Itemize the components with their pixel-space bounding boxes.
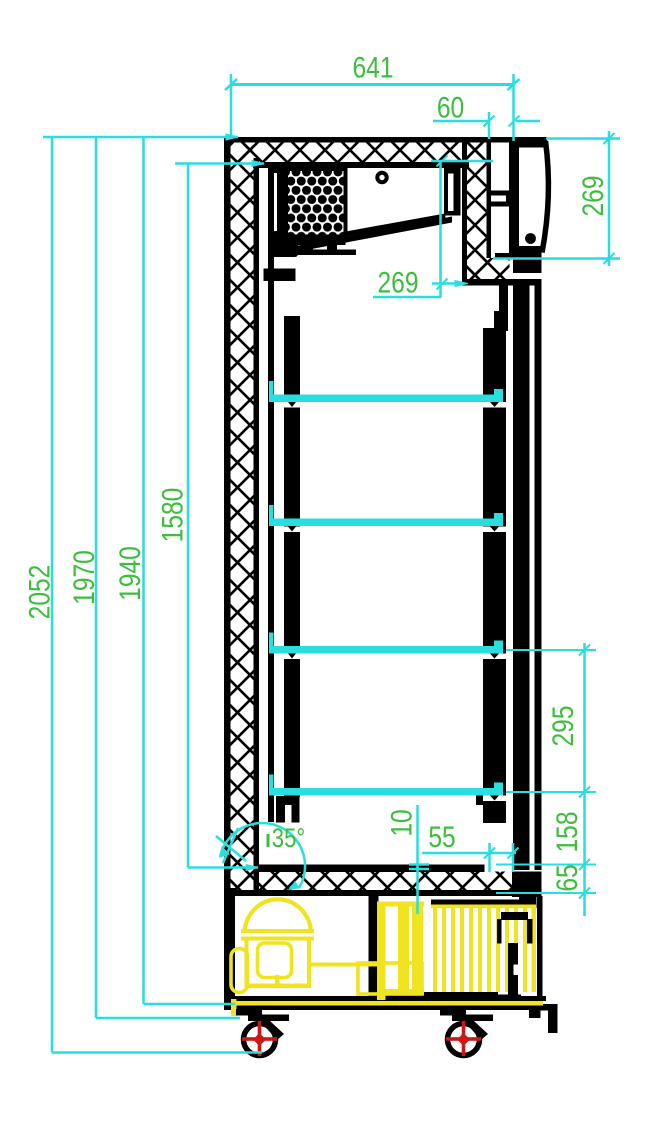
svg-text:65: 65 — [550, 864, 584, 891]
svg-text:35°: 35° — [272, 824, 305, 854]
svg-text:295: 295 — [546, 705, 580, 746]
svg-text:60: 60 — [437, 90, 464, 124]
svg-text:1970: 1970 — [67, 550, 101, 605]
svg-text:10: 10 — [384, 809, 418, 836]
svg-text:1940: 1940 — [113, 546, 147, 601]
svg-text:1580: 1580 — [155, 488, 189, 543]
svg-text:641: 641 — [352, 50, 393, 84]
svg-text:55: 55 — [428, 820, 455, 854]
svg-text:2052: 2052 — [22, 565, 56, 620]
svg-text:158: 158 — [550, 811, 584, 852]
svg-text:269: 269 — [576, 175, 610, 216]
svg-text:269: 269 — [377, 265, 418, 299]
